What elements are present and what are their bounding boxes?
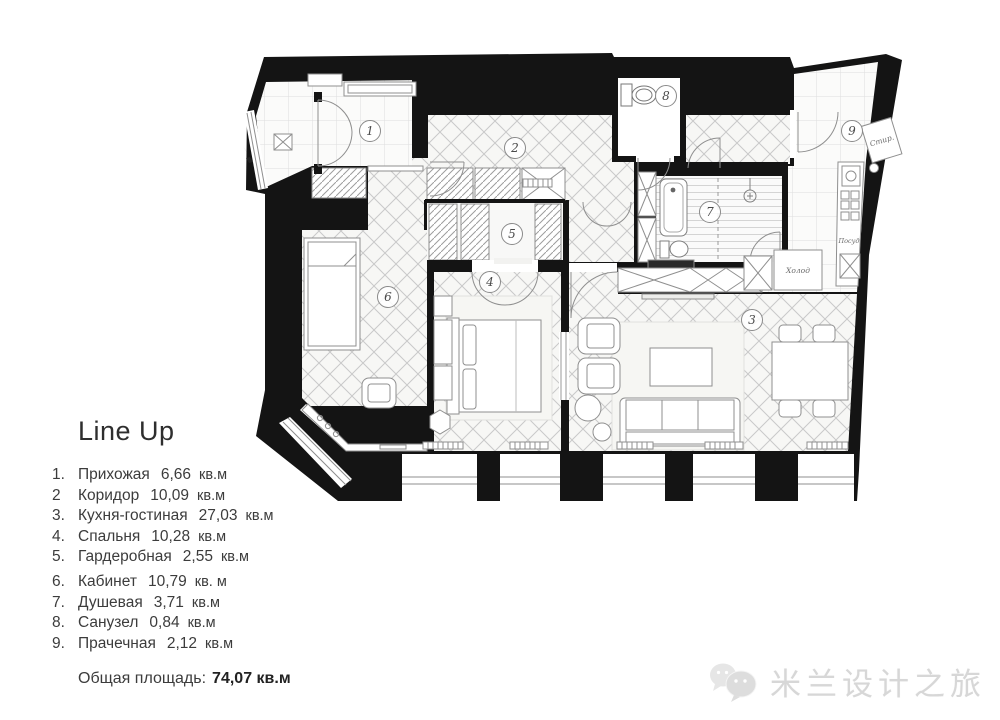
bedroom-furniture bbox=[430, 296, 569, 434]
total-area-value: 74,07 кв.м bbox=[212, 670, 291, 687]
room-wc bbox=[612, 72, 686, 162]
armchair-icon-2 bbox=[578, 358, 620, 394]
toilet-icon-2 bbox=[660, 241, 688, 258]
fridge-label: Холод bbox=[785, 266, 810, 275]
room-circle-3: 3 bbox=[742, 310, 763, 331]
legend: Line Up 1.Прихожая6,66кв.м 2Коридор10,09… bbox=[52, 416, 352, 688]
grille bbox=[705, 442, 743, 449]
svg-text:6: 6 bbox=[384, 290, 392, 304]
watermark-text: 米兰设计之旅 bbox=[770, 659, 986, 704]
side-table-icon-2 bbox=[593, 423, 611, 441]
legend-row: 7.Душевая3,71кв.м bbox=[52, 593, 352, 614]
page-title: Line Up bbox=[78, 416, 352, 447]
svg-text:4: 4 bbox=[485, 275, 494, 289]
toilet-icon bbox=[621, 84, 656, 106]
legend-row: 4.Спальня10,28кв.м bbox=[52, 527, 352, 548]
room-circle-8: 8 bbox=[656, 86, 677, 107]
svg-text:8: 8 bbox=[662, 89, 670, 103]
room-circle-5: 5 bbox=[502, 224, 523, 245]
legend-row: 9.Прачечная2,12кв.м bbox=[52, 634, 352, 655]
daybed-icon bbox=[304, 238, 360, 350]
room-circle-9: 9 bbox=[842, 121, 863, 142]
bathtub-icon bbox=[660, 179, 687, 236]
grille bbox=[423, 442, 463, 449]
dresser-icons bbox=[434, 296, 452, 400]
wechat-bubbles-icon bbox=[708, 660, 760, 704]
side-table-icon bbox=[575, 395, 601, 421]
room-circle-6: 6 bbox=[378, 287, 399, 308]
legend-row: 2Коридор10,09кв.м bbox=[52, 486, 352, 507]
grille bbox=[807, 442, 848, 449]
room-circle-7: 7 bbox=[700, 202, 721, 223]
legend-row: 1.Прихожая6,66кв.м bbox=[52, 465, 352, 486]
legend-row: 6.Кабинет10,79кв. м bbox=[52, 572, 352, 593]
grille bbox=[617, 442, 653, 449]
room-circle-2: 2 bbox=[505, 138, 526, 159]
total-area: Общая площадь:74,07 кв.м bbox=[78, 670, 352, 688]
coffee-table-icon bbox=[650, 348, 712, 386]
grille bbox=[510, 442, 548, 449]
watermark: 米兰设计之旅 bbox=[708, 659, 986, 704]
svg-text:2: 2 bbox=[510, 141, 519, 155]
room-circle-4: 4 bbox=[480, 272, 501, 293]
legend-row: 5.Гардеробная2,55кв.м bbox=[52, 547, 352, 568]
svg-text:7: 7 bbox=[706, 205, 714, 219]
grille bbox=[523, 179, 552, 187]
sofa-icon bbox=[620, 398, 740, 446]
armchair-icon bbox=[578, 318, 620, 354]
legend-row: 8.Санузел0,84кв.м bbox=[52, 613, 352, 634]
bed-icon bbox=[447, 318, 541, 414]
svg-text:1: 1 bbox=[366, 124, 374, 138]
svg-text:5: 5 bbox=[508, 227, 516, 241]
glass-partition bbox=[559, 332, 569, 400]
svg-text:9: 9 bbox=[848, 124, 856, 138]
room-circle-1: 1 bbox=[360, 121, 381, 142]
floor-plan-page: 1 2 3 4 5 6 7 8 9 Холод Стир. Посуд Line… bbox=[0, 0, 1000, 720]
legend-row: 3.Кухня-гостиная27,03кв.м bbox=[52, 506, 352, 527]
svg-text:3: 3 bbox=[748, 313, 756, 327]
desk-chair-icon bbox=[362, 378, 396, 408]
dishwasher-label: Посуд bbox=[837, 237, 859, 245]
